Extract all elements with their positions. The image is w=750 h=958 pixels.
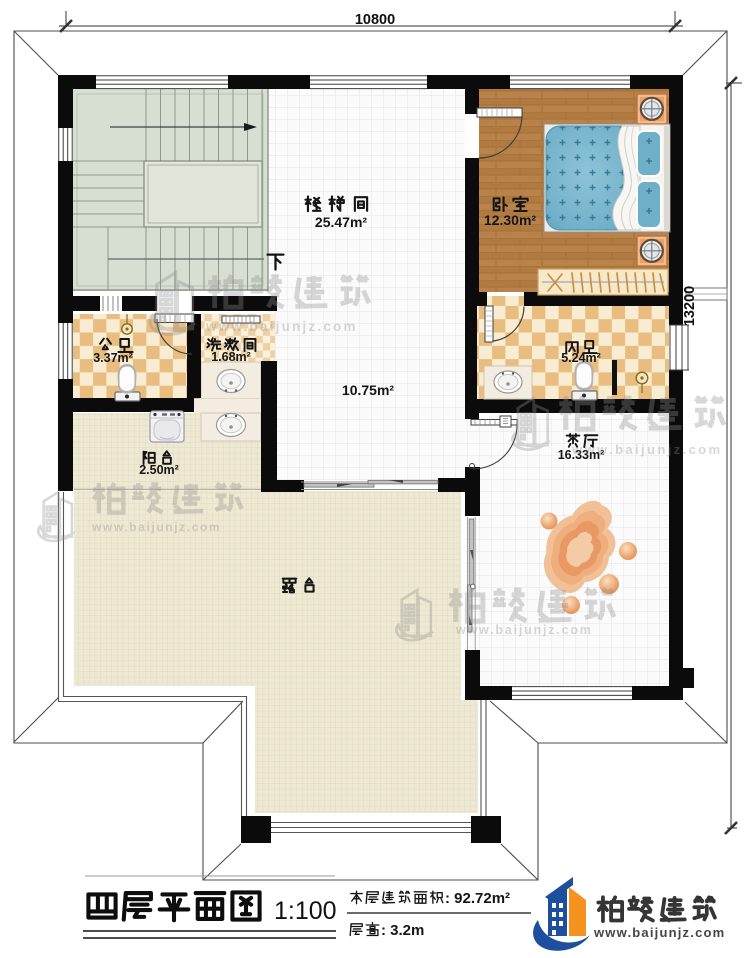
svg-text:: 3.2m: : 3.2m (381, 922, 424, 939)
svg-text:10800: 10800 (355, 12, 395, 28)
svg-text:www.baijunjz.com: www.baijunjz.com (205, 319, 358, 334)
svg-text:www.baijunjz.com: www.baijunjz.com (593, 925, 725, 940)
svg-text:13200: 13200 (682, 286, 698, 326)
svg-text:25.47m²: 25.47m² (315, 214, 367, 230)
svg-text:12.30m²: 12.30m² (484, 212, 536, 228)
svg-text:1:100: 1:100 (274, 897, 337, 925)
svg-text:1.68m²: 1.68m² (211, 350, 251, 364)
svg-text:: 92.72m²: : 92.72m² (445, 890, 510, 907)
svg-text:www.baijunjz.com: www.baijunjz.com (91, 520, 221, 534)
svg-text:10.75m²: 10.75m² (342, 382, 394, 398)
svg-text:www.baijunjz.com: www.baijunjz.com (571, 442, 723, 457)
svg-text:2.50m²: 2.50m² (139, 463, 179, 477)
svg-text:5.24m²: 5.24m² (561, 351, 601, 365)
svg-text:3.37m²: 3.37m² (93, 351, 133, 365)
svg-text:www.baijunjz.com: www.baijunjz.com (455, 623, 593, 637)
